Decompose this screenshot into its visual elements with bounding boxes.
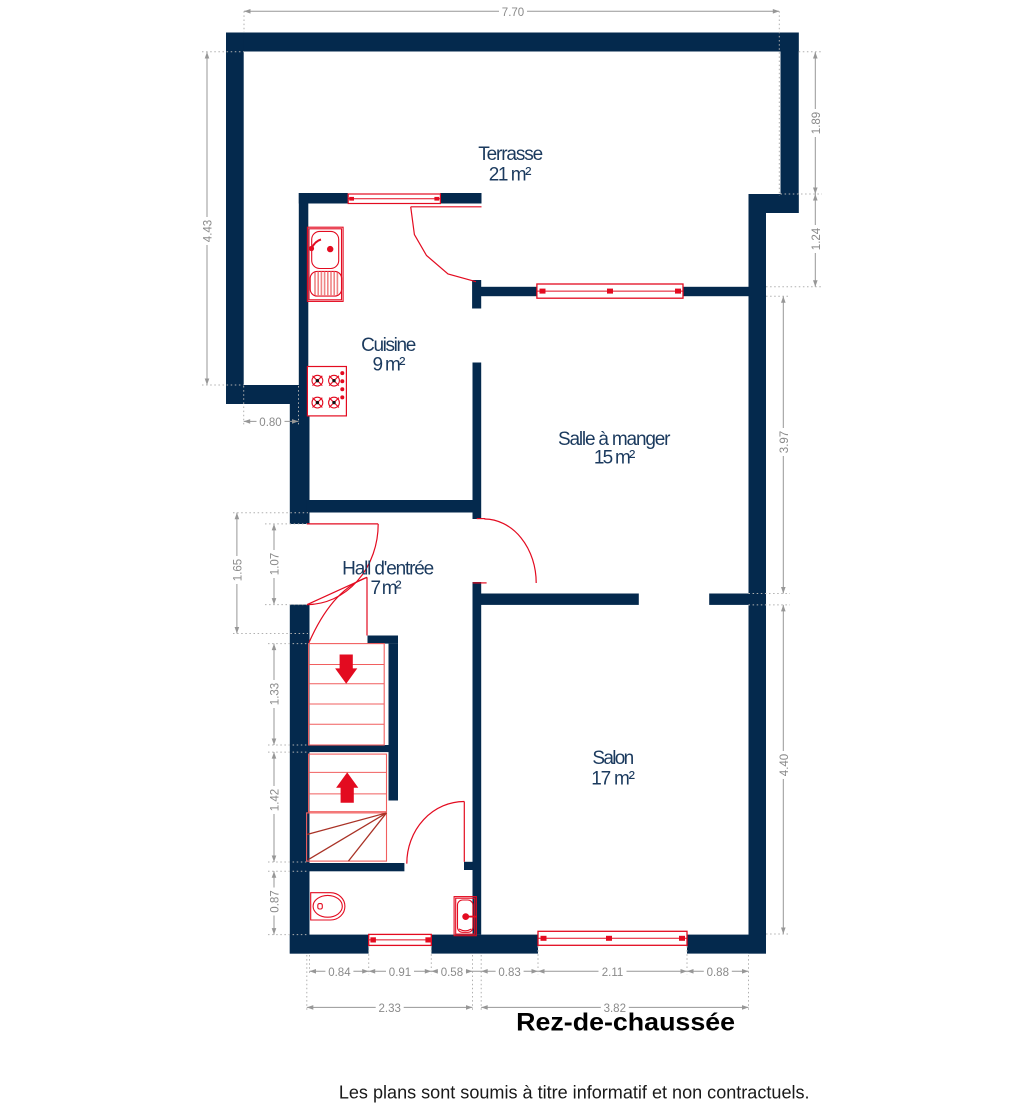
svg-text:1.42: 1.42 (270, 789, 282, 811)
svg-text:1.65: 1.65 (232, 559, 244, 581)
svg-text:4.40: 4.40 (779, 754, 791, 776)
svg-text:0.88: 0.88 (707, 967, 729, 979)
svg-text:0.58: 0.58 (441, 967, 463, 979)
svg-text:0.91: 0.91 (389, 967, 411, 979)
svg-text:4.43: 4.43 (203, 220, 215, 242)
svg-text:0.87: 0.87 (270, 890, 282, 912)
svg-text:1.24: 1.24 (811, 227, 823, 250)
svg-text:3.97: 3.97 (779, 431, 791, 453)
svg-text:7 m²: 7 m² (370, 578, 401, 599)
svg-text:1.89: 1.89 (811, 112, 823, 134)
svg-text:0.83: 0.83 (498, 967, 520, 979)
svg-text:Les plans sont soumis à titre: Les plans sont soumis à titre informatif… (339, 1082, 810, 1103)
svg-text:17 m²: 17 m² (591, 769, 635, 790)
svg-text:21 m²: 21 m² (489, 164, 532, 185)
svg-text:9 m²: 9 m² (373, 355, 406, 376)
svg-text:1.07: 1.07 (270, 553, 282, 575)
svg-text:Rez-de-chaussée: Rez-de-chaussée (516, 1009, 735, 1037)
svg-text:15 m²: 15 m² (594, 448, 635, 469)
svg-text:Terrasse: Terrasse (478, 144, 543, 165)
svg-text:Cuisine: Cuisine (361, 335, 416, 356)
svg-text:0.84: 0.84 (328, 967, 351, 979)
svg-text:0.80: 0.80 (259, 417, 281, 429)
svg-text:1.33: 1.33 (270, 683, 282, 705)
svg-text:7.70: 7.70 (502, 7, 524, 19)
svg-text:Salon: Salon (592, 748, 634, 769)
svg-text:2.11: 2.11 (602, 967, 624, 979)
svg-text:2.33: 2.33 (379, 1003, 401, 1015)
svg-text:Hall d'entrée: Hall d'entrée (342, 559, 434, 580)
